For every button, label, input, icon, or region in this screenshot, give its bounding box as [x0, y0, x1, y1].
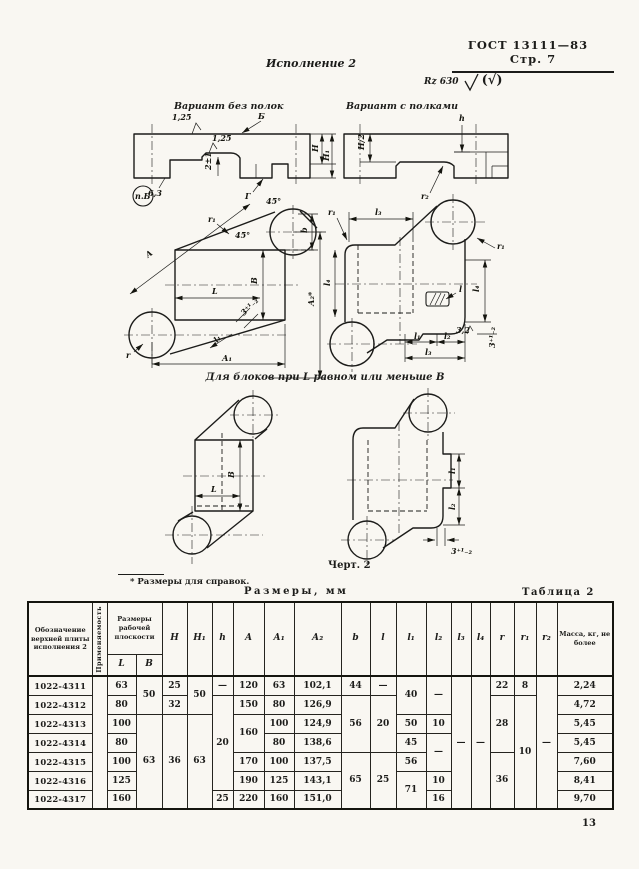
cell-L: 100 [107, 714, 136, 733]
cell-designation: 1022-4315 [28, 752, 92, 771]
header-applicability: Применяемость [92, 602, 107, 676]
header-A1: А₁ [264, 602, 294, 676]
cell-designation: 1022-4316 [28, 771, 92, 790]
angle-45-top: 45° [266, 196, 281, 206]
dim-2pm1: 2±1 [203, 152, 213, 171]
dim-l1-bottom: l₁ [414, 331, 421, 341]
header-H1: Н₁ [187, 602, 212, 676]
cell-l4: — [471, 676, 490, 809]
dim-H: Н [310, 144, 320, 153]
cell-r: 28 [490, 695, 514, 752]
cell-B: 50 [136, 676, 162, 714]
dim-r: r [126, 350, 131, 360]
cell-h: 25 [212, 790, 233, 809]
document-page: ГОСТ 13111—83 Стр. 7 Исполнение 2 Rz 630… [0, 0, 639, 869]
cell-A1: 160 [264, 790, 294, 809]
cell-mass: 9,70 [557, 790, 613, 809]
cell-H1: 63 [187, 714, 212, 809]
cell-A: 220 [233, 790, 264, 809]
block-outline [173, 396, 272, 554]
angle-45-mid: 45° [235, 230, 250, 240]
header-l3: l₃ [451, 602, 471, 676]
header-l4: l₄ [471, 602, 490, 676]
cell-r1: 8 [514, 676, 536, 695]
dim-l4-right: l₄ [471, 285, 481, 292]
cell-l1: 56 [396, 752, 426, 771]
cell-designation: 1022-4311 [28, 676, 92, 695]
cell-A2: 138,6 [294, 733, 341, 752]
header-mass: Масса, кг, не более [557, 602, 613, 676]
header-b: b [341, 602, 370, 676]
footnote-rule [118, 574, 164, 575]
cell-A2: 126,9 [294, 695, 341, 714]
dim-A1: А₁ [221, 353, 232, 363]
cell-l1: 40 [396, 676, 426, 714]
header-B: B [136, 654, 162, 676]
view-label-b: Б [257, 111, 265, 121]
cell-H: 25 [162, 676, 187, 695]
roughness-note: Rz 630 (√) [424, 72, 503, 92]
dim-l3-bottom: l₃ [425, 347, 432, 357]
header-r1: r₁ [514, 602, 536, 676]
cell-A1: 80 [264, 733, 294, 752]
dim-A2: А₂* [306, 291, 316, 307]
cell-L: 63 [107, 676, 136, 695]
cell-L: 125 [107, 771, 136, 790]
header-A: А [233, 602, 264, 676]
block-outline [348, 394, 451, 559]
dim-l3-top: l₃ [375, 207, 382, 217]
dimension-lines [360, 125, 470, 193]
header-H: Н [162, 602, 187, 676]
dim-l2-bottom: l₂ [444, 331, 451, 341]
cell-L: 80 [107, 695, 136, 714]
dimensions-table-wrap: Обозначение верхней плиты исполнения 2 П… [27, 601, 614, 810]
header-work-plane: Размеры рабочей плоскости [107, 602, 162, 654]
profile-outline [344, 134, 508, 178]
cell-l1: 45 [396, 733, 426, 752]
cell-H: 32 [162, 695, 187, 714]
block-outline [129, 209, 317, 358]
cell-designation: 1022-4314 [28, 733, 92, 752]
cell-L: 160 [107, 790, 136, 809]
dim-L: L [210, 484, 217, 494]
mid-caption: Для блоков при L равном или меньше В [160, 372, 490, 383]
page-number: 13 [582, 818, 596, 829]
cell-A2: 151,0 [294, 790, 341, 809]
cell-mass: 4,72 [557, 695, 613, 714]
roughness-check-icon [462, 72, 482, 92]
roughness-32: 3,2 [456, 325, 470, 335]
header-r: r [490, 602, 514, 676]
centerlines [165, 390, 280, 564]
dim-r1: r₁ [208, 214, 216, 224]
header-l2: l₂ [426, 602, 451, 676]
dim-B: В [226, 471, 236, 479]
doc-ref: ГОСТ 13111—83 [468, 38, 588, 52]
cell-r: 22 [490, 676, 514, 695]
cell-mass: 2,24 [557, 676, 613, 695]
cell-mass: 7,60 [557, 752, 613, 771]
cell-L: 100 [107, 752, 136, 771]
header-h: h [212, 602, 233, 676]
plan-view-small-left: В L [145, 388, 335, 568]
cell-mass: 5,45 [557, 733, 613, 752]
cell-applicability [92, 676, 107, 809]
cell-r2: — [536, 676, 557, 809]
cell-H: 36 [162, 714, 187, 809]
rz-value: Rz 630 [424, 77, 459, 87]
cell-designation: 1022-4312 [28, 695, 92, 714]
table-title: Таблица 2 [522, 587, 595, 598]
dim-tolerance-3: 3⁺¹₋₂ [487, 326, 497, 348]
roughness-125-top: 1,25 [172, 112, 192, 122]
header-l: l [370, 602, 396, 676]
cell-designation: 1022-4317 [28, 790, 92, 809]
dim-l1: l₁ [211, 333, 223, 345]
dim-l: l [459, 284, 462, 294]
roughness-125-mid: 1,25 [212, 133, 232, 143]
cell-A: 150 [233, 695, 264, 714]
cell-b: 44 [341, 676, 370, 695]
table-row: 1022-4312 80 32 20 150 80 126,9 56 20 28… [28, 695, 613, 714]
table-row: 1022-4311 63 50 25 50 — 120 63 102,1 44 … [28, 676, 613, 695]
cell-B: 63 [136, 714, 162, 809]
header-designation: Обозначение верхней плиты исполнения 2 [28, 602, 92, 676]
cell-L: 80 [107, 733, 136, 752]
size-units-note: Размеры, мм [244, 586, 348, 597]
cell-A1: 80 [264, 695, 294, 714]
plan-view-right: l₃ r₁ r₁ l₄ l₄ l l₁ l₂ l₃ 3,2 3⁺¹₋₂ [325, 192, 520, 382]
dim-r1-left: r₁ [328, 207, 336, 217]
cell-h: — [212, 676, 233, 695]
dim-l2: l₂ [447, 503, 457, 510]
cell-r1: 10 [514, 695, 536, 809]
cell-A1: 125 [264, 771, 294, 790]
overall-roughness: (√) [482, 73, 503, 88]
footnote: * Размеры для справок. [130, 577, 249, 587]
dim-r1-right: r₁ [497, 241, 505, 251]
dim-A: А [142, 248, 154, 261]
cell-l3: — [451, 676, 471, 809]
cell-l: 25 [370, 752, 396, 809]
cell-A1: 100 [264, 714, 294, 733]
execution-title: Исполнение 2 [266, 57, 356, 70]
dim-H1: Н₁ [321, 150, 331, 162]
cell-l2: — [426, 733, 451, 771]
cell-l2: 10 [426, 714, 451, 733]
dim-h: h [459, 113, 465, 123]
header-l1: l₁ [396, 602, 426, 676]
cell-l2: — [426, 676, 451, 714]
drawing-caption: Черт. 2 [328, 560, 371, 571]
cell-l2: 10 [426, 771, 451, 790]
cell-A: 120 [233, 676, 264, 695]
cell-l1: 71 [396, 771, 426, 809]
dim-l1: l₁ [447, 467, 457, 474]
dim-b: b [299, 227, 309, 233]
cell-A2: 124,9 [294, 714, 341, 733]
cell-A1: 63 [264, 676, 294, 695]
plan-view-small-right: l₁ l₂ 3⁺¹₋₂ [325, 388, 520, 568]
dim-L: L [211, 286, 218, 296]
cell-l: 20 [370, 695, 396, 752]
cell-designation: 1022-4313 [28, 714, 92, 733]
cell-A2: 102,1 [294, 676, 341, 695]
centerlines [327, 194, 485, 372]
cell-A2: 137,5 [294, 752, 341, 771]
dim-tolerance-3: 3⁺¹₋₂ [451, 546, 473, 556]
dimension-lines [423, 454, 465, 546]
cell-l1: 50 [396, 714, 426, 733]
dim-B: В [249, 277, 259, 285]
cell-A: 170 [233, 752, 264, 771]
cell-l: — [370, 676, 396, 695]
cell-A: 190 [233, 771, 264, 790]
cell-A1: 100 [264, 752, 294, 771]
cell-A: 160 [233, 714, 264, 752]
cell-r: 36 [490, 752, 514, 809]
header-r2: r₂ [536, 602, 557, 676]
cell-A2: 143,1 [294, 771, 341, 790]
plan-view-left: А r₁ 45° 45° b В L А₂* 3⁺¹₋₂ l₁ r А₁ [120, 192, 332, 384]
cell-H1: 50 [187, 676, 212, 714]
header-L: L [107, 654, 136, 676]
cell-mass: 5,45 [557, 714, 613, 733]
page-ref: Стр. 7 [510, 52, 556, 66]
cell-mass: 8,41 [557, 771, 613, 790]
header-A2: А₂ [294, 602, 341, 676]
cell-l2: 16 [426, 790, 451, 809]
doc-header: ГОСТ 13111—83 Стр. 7 [452, 38, 614, 73]
dim-l4-left: l₄ [322, 279, 332, 286]
cell-h: 20 [212, 695, 233, 790]
cell-b: 65 [341, 752, 370, 809]
dimensions-table: Обозначение верхней плиты исполнения 2 П… [27, 601, 614, 810]
dim-tolerance-3: 3⁺¹₋₂ [238, 295, 260, 317]
cell-b: 56 [341, 695, 370, 752]
dim-H2: H/2 [356, 134, 366, 151]
centerlines [341, 388, 455, 566]
